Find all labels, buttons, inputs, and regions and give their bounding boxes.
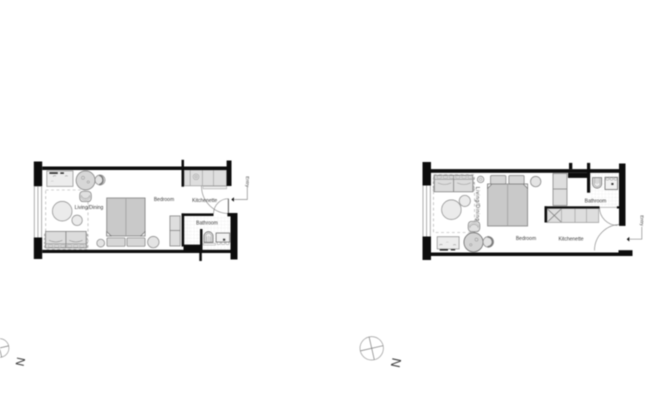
svg-text:Bathroom: Bathroom bbox=[196, 221, 218, 227]
svg-text:Kitchenette: Kitchenette bbox=[192, 198, 217, 204]
svg-text:Bedroom: Bedroom bbox=[154, 197, 174, 203]
svg-text:Living/Dining: Living/Dining bbox=[474, 187, 480, 221]
svg-text:Entry: Entry bbox=[245, 176, 250, 187]
svg-text:Entry: Entry bbox=[639, 215, 644, 226]
svg-text:Kitchenette: Kitchenette bbox=[558, 237, 583, 243]
svg-text:N: N bbox=[388, 357, 405, 369]
svg-text:Bedroom: Bedroom bbox=[516, 236, 536, 242]
svg-text:Living/Dining: Living/Dining bbox=[75, 205, 104, 211]
svg-text:N: N bbox=[12, 356, 27, 367]
svg-text:Bathroom: Bathroom bbox=[585, 198, 607, 204]
